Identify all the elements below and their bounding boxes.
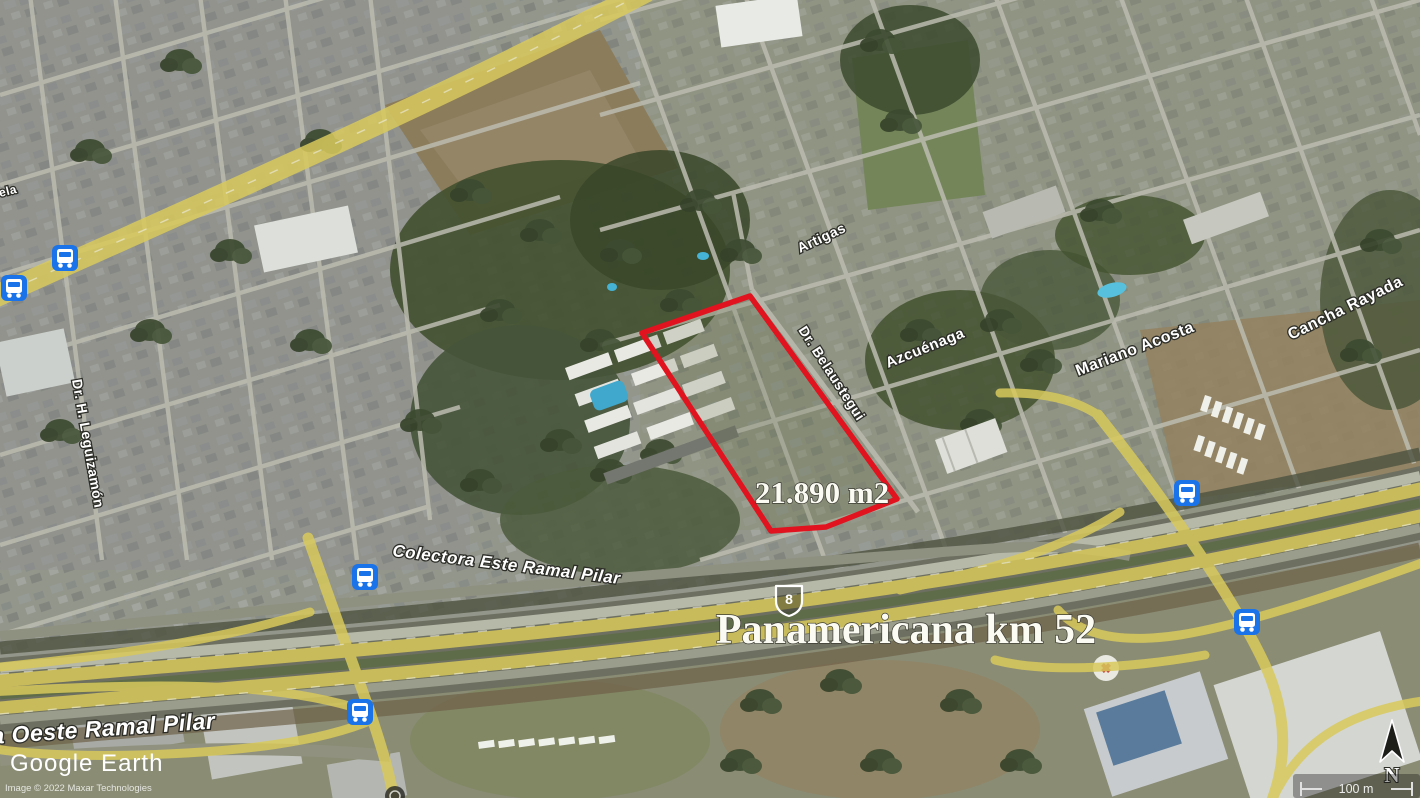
bus-stop-icon[interactable] bbox=[347, 699, 373, 725]
scale-bar: 100 m bbox=[1293, 774, 1420, 798]
pool-dot bbox=[607, 283, 617, 291]
scale-bar-label: 100 m bbox=[1339, 782, 1374, 796]
highway-name-label: Panamericana km 52 bbox=[716, 607, 1096, 653]
bus-stop-icon[interactable] bbox=[1, 275, 27, 301]
parcel-area-label: 21.890 m2 bbox=[755, 475, 889, 510]
route-shield-number: 8 bbox=[785, 591, 793, 607]
bus-stop-icon[interactable] bbox=[352, 564, 378, 590]
pool-dot bbox=[697, 252, 709, 260]
google-earth-map-canvas[interactable]: Artigas Azcuénaga Dr. Belaustegui Dr. H.… bbox=[0, 0, 1420, 798]
bus-stop-icon[interactable] bbox=[1174, 480, 1200, 506]
bus-stop-icon[interactable] bbox=[52, 245, 78, 271]
bus-stop-icon[interactable] bbox=[1234, 609, 1260, 635]
imagery-attribution: Image © 2022 Maxar Technologies bbox=[5, 783, 152, 794]
google-earth-logo: Google Earth bbox=[10, 750, 163, 777]
